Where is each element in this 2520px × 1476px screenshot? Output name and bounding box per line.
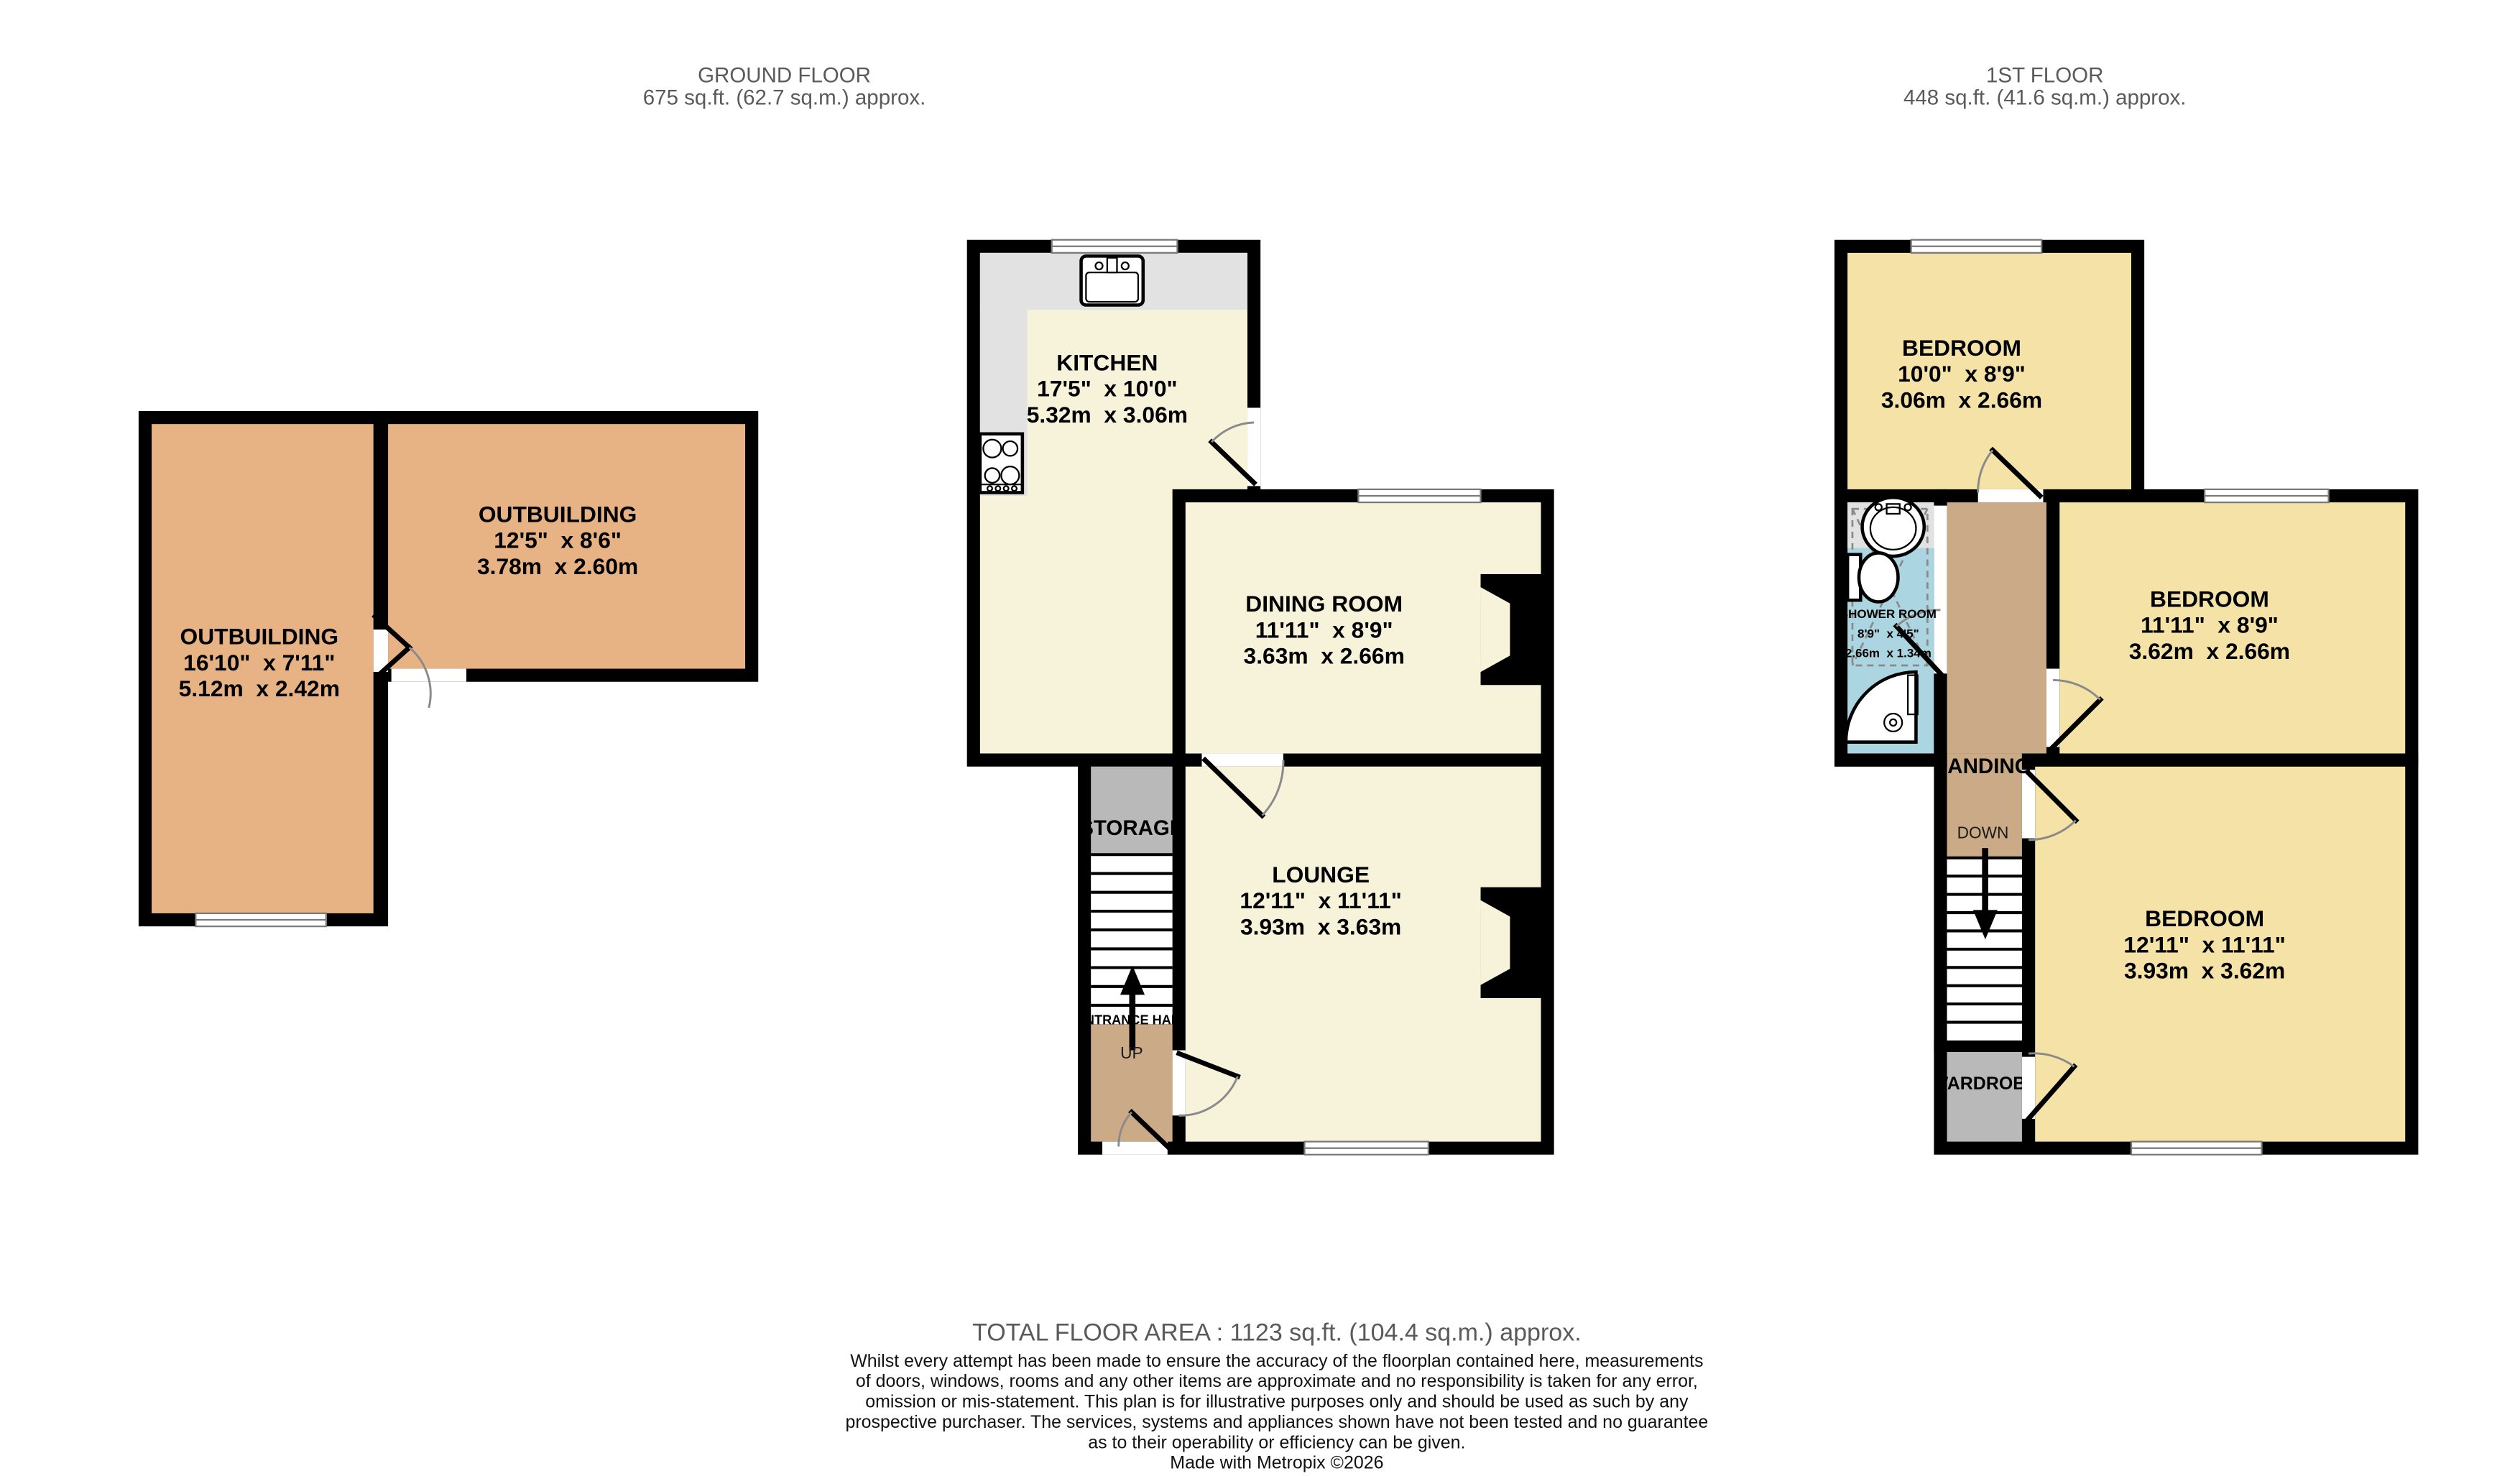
- basin: [1863, 497, 1924, 556]
- kitchen-name: KITCHEN: [1056, 349, 1158, 375]
- kitchen-side-door-opening: [1247, 407, 1260, 486]
- wardrobe-floor: [1947, 1052, 2022, 1142]
- hall-lounge-door-opening: [1173, 1051, 1186, 1116]
- stairs-up-label: UP: [1120, 1043, 1143, 1062]
- lounge-name: LOUNGE: [1272, 862, 1370, 887]
- shower-room-name: SHOWER ROOM: [1840, 607, 1937, 621]
- disclaimer-line-5: as to their operability or efficiency ca…: [1088, 1432, 1465, 1452]
- wardrobe-door-opening: [2022, 1057, 2035, 1119]
- disclaimer-line-3: omission or mis-statement. This plan is …: [865, 1392, 1689, 1412]
- bedroom-front-window: [1911, 240, 2042, 253]
- bedroom-middle-metric: 3.62m x 2.66m: [2129, 638, 2290, 664]
- front-door-opening: [1102, 1142, 1168, 1155]
- kitchen-imperial: 17'5" x 10'0": [1037, 376, 1177, 402]
- bedroom-middle-name: BEDROOM: [2150, 586, 2269, 612]
- disclaimer-line-2: of doors, windows, rooms and any other i…: [856, 1371, 1698, 1391]
- lounge-imperial: 12'11" x 11'11": [1240, 887, 1401, 913]
- kitchen-metric: 5.32m x 3.06m: [1027, 402, 1188, 428]
- floorplan-drawing: GROUND FLOOR 675 sq.ft. (62.7 sq.m.) app…: [0, 0, 2520, 1476]
- shower-door-opening: [1934, 506, 1947, 674]
- dining-lounge-door-opening: [1201, 754, 1283, 767]
- lounge-fireplace: [1481, 887, 1541, 998]
- toilet: [1847, 553, 1898, 601]
- floor-headers: GROUND FLOOR 675 sq.ft. (62.7 sq.m.) app…: [643, 64, 2187, 110]
- outbuilding-right-metric: 3.78m x 2.60m: [477, 553, 638, 579]
- bedroom-middle-bottom-wall: [2022, 754, 2418, 767]
- landing-label: LANDING: [1934, 755, 2031, 778]
- bedroom-front-name: BEDROOM: [1902, 335, 2021, 361]
- dining-room-name: DINING ROOM: [1245, 591, 1403, 617]
- wardrobe-label: WARDROBE: [1931, 1074, 2038, 1094]
- bedroom-back-imperial: 12'11" x 11'11": [2123, 931, 2285, 957]
- storage-floor: [1091, 767, 1172, 855]
- first-floor-plan: BEDROOM 10'0" x 8'9" 3.06m x 2.66m BEDRO…: [1834, 240, 2418, 1155]
- metropix-credit: Made with Metropix ©2026: [1170, 1453, 1383, 1473]
- floorplan-page: GROUND FLOOR 675 sq.ft. (62.7 sq.m.) app…: [0, 0, 2520, 1476]
- first-floor-title: 1ST FLOOR: [1986, 64, 2103, 88]
- first-floor-area: 448 sq.ft. (41.6 sq.m.) approx.: [1903, 86, 2187, 109]
- disclaimer-line-4: prospective purchaser. The services, sys…: [845, 1412, 1708, 1432]
- outbuilding-left-imperial: 16'10" x 7'11": [183, 650, 335, 675]
- bedroom-back-metric: 3.93m x 3.62m: [2124, 958, 2285, 984]
- lounge-metric: 3.93m x 3.63m: [1240, 913, 1401, 939]
- ground-floor-title: GROUND FLOOR: [698, 64, 871, 88]
- outbuilding-window: [195, 913, 326, 926]
- dining-room-metric: 3.63m x 2.66m: [1244, 643, 1405, 669]
- dining-fireplace: [1481, 574, 1541, 685]
- dining-room-imperial: 11'11" x 8'9": [1255, 617, 1393, 642]
- kitchen-hob: [980, 434, 1023, 493]
- shower-room-metric: 2.66m x 1.34m: [1845, 647, 1931, 660]
- stairs-down-label: DOWN: [1957, 824, 2009, 842]
- outbuilding-right-name: OUTBUILDING: [479, 501, 637, 527]
- dining-room-window: [1358, 489, 1480, 502]
- bedroom-middle-window: [2205, 489, 2328, 502]
- bedroom-back-name: BEDROOM: [2145, 905, 2264, 931]
- ground-floor-area: 675 sq.ft. (62.7 sq.m.) approx.: [643, 86, 926, 109]
- bedroom-front-metric: 3.06m x 2.66m: [1881, 387, 2042, 412]
- bedroom-front-imperial: 10'0" x 8'9": [1898, 361, 2026, 387]
- stairs-wardrobe-wall: [1934, 1041, 2035, 1052]
- disclaimer-line-1: Whilst every attempt has been made to en…: [850, 1351, 1703, 1371]
- outbuilding-left-name: OUTBUILDING: [180, 624, 339, 650]
- outbuilding-right-imperial: 12'5" x 8'6": [494, 527, 622, 553]
- shower-room-imperial: 8'9" x 4'5": [1857, 627, 1919, 640]
- kitchen-window: [1052, 240, 1178, 253]
- outbuilding-block: OUTBUILDING 16'10" x 7'11" 5.12m x 2.42m…: [139, 411, 758, 926]
- ground-floor-plan: KITCHEN 17'5" x 10'0" 5.32m x 3.06m DINI…: [967, 240, 1554, 1155]
- bedroom-middle-imperial: 11'11" x 8'9": [2141, 612, 2279, 638]
- bedroom-back-window: [2131, 1142, 2262, 1155]
- kitchen-sink: [1081, 256, 1143, 305]
- footer: TOTAL FLOOR AREA : 1123 sq.ft. (104.4 sq…: [845, 1319, 1708, 1473]
- total-floor-area: TOTAL FLOOR AREA : 1123 sq.ft. (104.4 sq…: [972, 1319, 1582, 1347]
- landing-floor-upper: [1947, 502, 2046, 753]
- entrance-hall-label: ENTRANCE HALL: [1076, 1013, 1187, 1027]
- outbuilding-left-metric: 5.12m x 2.42m: [179, 675, 340, 701]
- lounge-window: [1304, 1142, 1428, 1155]
- shower-bottom-wall: [1834, 754, 1947, 767]
- storage-label: STORAGE: [1079, 816, 1183, 840]
